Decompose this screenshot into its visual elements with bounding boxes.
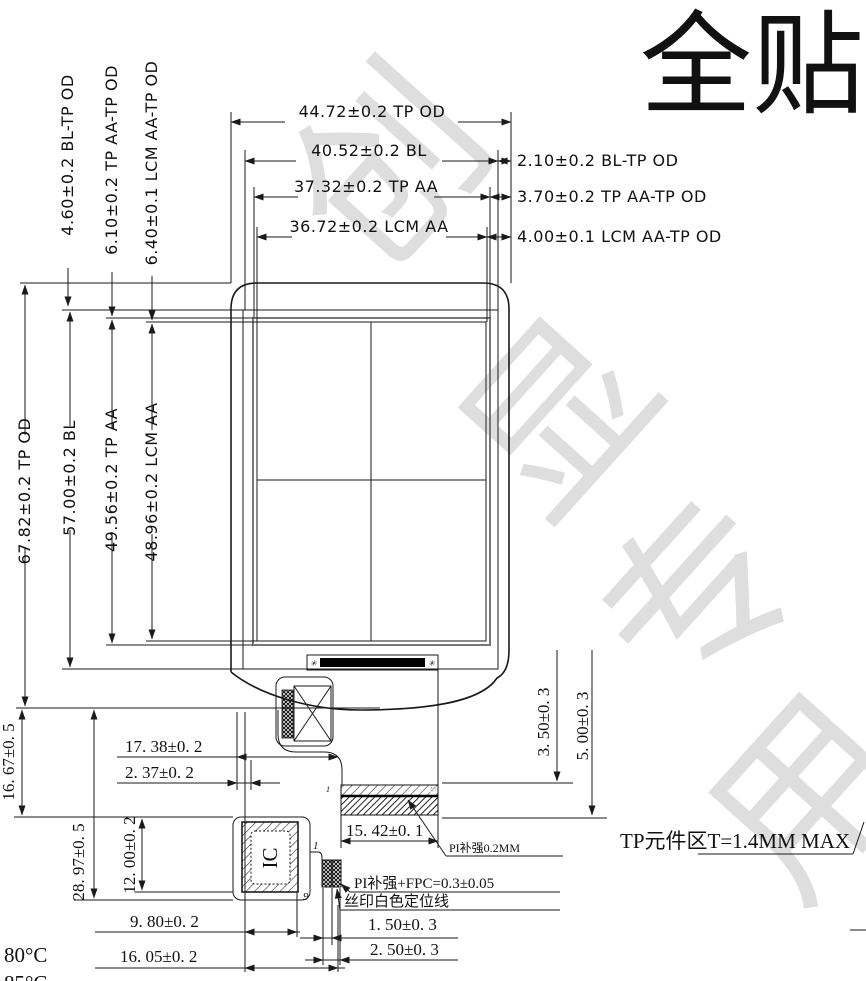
dim-tp-od-width: 44.72±0.2 TP OD <box>299 102 446 121</box>
dim-tp-od-height: 67.82±0.2 TP OD <box>15 418 34 565</box>
temp-85: 85°C <box>4 971 47 981</box>
dim-fpc-offset-1738: 17. 38±0. 2 <box>125 737 202 756</box>
dim-lcm-aa-width: 36.72±0.2 LCM AA <box>289 217 448 236</box>
note-tp-component-area: TP元件区T=1.4MM MAX <box>620 829 850 853</box>
watermark-char-1: 创 <box>253 32 529 307</box>
dim-total-fpc-height: 28. 97±0. 5 <box>69 823 88 900</box>
lcm-bonding-bar <box>320 658 425 667</box>
page-title: 全贴 <box>640 5 864 129</box>
dim-lcmaa-tpod-offset: 4.00±0.1 LCM AA-TP OD <box>517 227 722 246</box>
dim-lcm-aa-height: 48.96±0.2 LCM AA <box>142 402 161 561</box>
pi-stiffener-top <box>341 785 438 796</box>
dim-pi-bar-width: 15. 42±0. 1 <box>346 821 423 840</box>
pin-9-label-connector: 9 <box>303 891 309 903</box>
pin-1-label-connector: 1 <box>313 840 319 852</box>
dim-fpc-500: 5. 00±0. 3 <box>573 692 592 761</box>
dim-ic-width: 9. 80±0. 2 <box>130 912 199 931</box>
dim-fpc-offset-237: 2. 37±0. 2 <box>125 763 194 782</box>
dim-bl-width: 40.52±0.2 BL <box>311 141 427 160</box>
connector-step <box>310 852 322 860</box>
dim-ic-region-height: 12. 00±0. 2 <box>120 816 139 893</box>
drawing-canvas: 创 显 专 用 全贴 ✳ ✳ <box>0 0 866 981</box>
dim-connector-250: 2. 50±0. 3 <box>370 940 439 959</box>
note-pi-stiffener: PI补强0.2MM <box>449 841 520 855</box>
engineering-drawing: 创 显 专 用 全贴 ✳ ✳ <box>0 0 866 981</box>
folded-connector-contacts <box>282 690 293 738</box>
dim-lcmaa-top-offset: 6.40±0.1 LCM AA-TP OD <box>142 61 161 266</box>
dim-fpc-width-1605: 16. 05±0. 2 <box>120 947 197 966</box>
dim-tp-aa-height: 49.56±0.2 TP AA <box>102 408 121 552</box>
dim-tpaa-tpod-offset: 3.70±0.2 TP AA-TP OD <box>517 187 707 206</box>
bonding-mark-right: ✳ <box>428 659 436 668</box>
dim-bl-height: 57.00±0.2 BL <box>60 420 79 536</box>
note-pi-fpc-thickness: PI补强+FPC=0.3±0.05 <box>354 875 494 892</box>
dim-glass-to-fpc: 16. 67±0. 5 <box>0 723 18 800</box>
dim-bl-tpod-offset: 2.10±0.2 BL-TP OD <box>517 151 678 170</box>
pi-stiffener-bottom <box>341 796 438 815</box>
dim-tp-aa-width: 37.32±0.2 TP AA <box>294 177 438 196</box>
dim-fpc-350: 3. 50±0. 3 <box>534 688 553 757</box>
dim-connector-150: 1. 50±0. 3 <box>368 915 437 934</box>
bonding-mark-left: ✳ <box>310 659 318 668</box>
fpc-area: 1 30 IC 1 9 <box>233 670 438 903</box>
pin-1-label-bar: 1 <box>326 785 330 794</box>
ic-label: IC <box>258 848 282 869</box>
note-silkscreen: 丝印白色定位线 <box>344 893 449 910</box>
temp-80: 80°C <box>4 943 47 967</box>
pin-30-label-bar: 30 <box>427 785 436 794</box>
panel-outlines: ✳ ✳ <box>231 283 509 710</box>
dim-bl-top-offset: 4.60±0.2 BL-TP OD <box>58 74 77 235</box>
dim-tpaa-top-offset: 6.10±0.2 TP AA-TP OD <box>102 65 121 255</box>
